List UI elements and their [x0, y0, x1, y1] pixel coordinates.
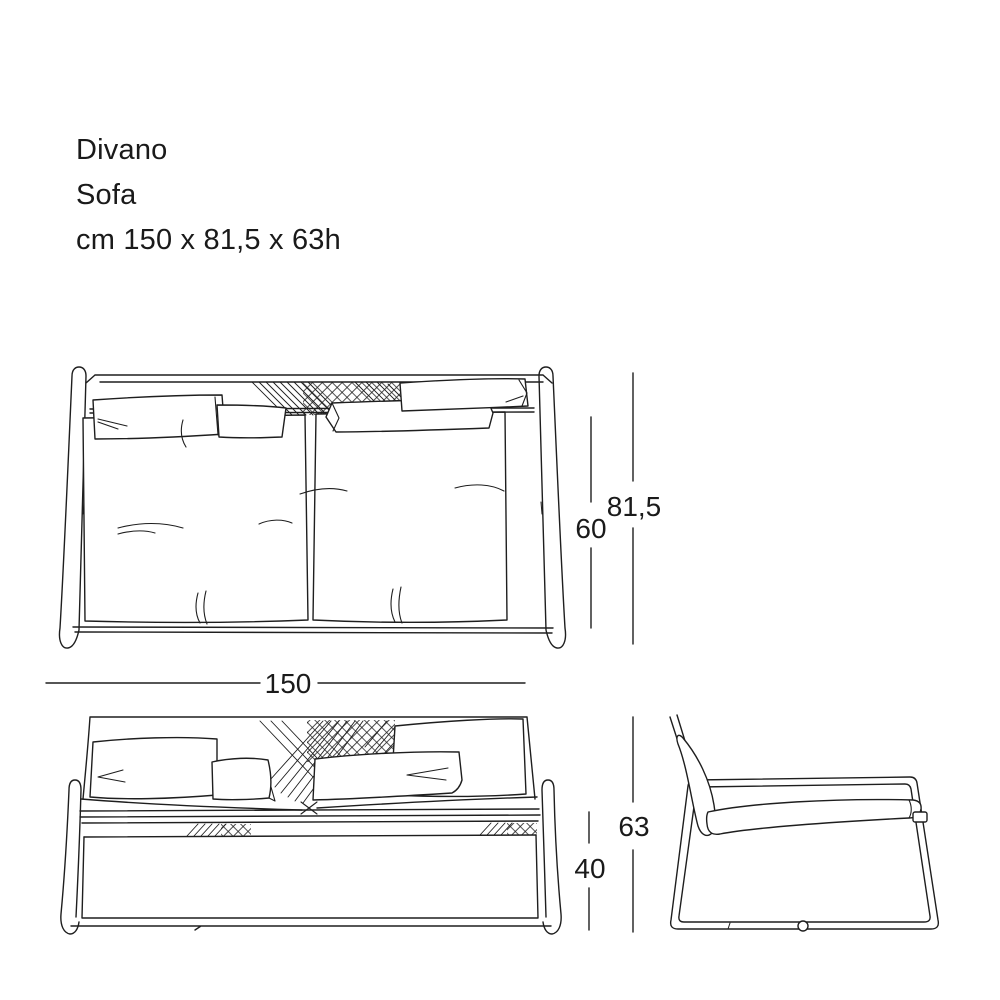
seat-rail-front-view — [80, 809, 540, 837]
dim-label-seat-depth: 60 — [575, 515, 606, 543]
sofa-side-view-drawing — [650, 700, 950, 935]
lumbar-pillow-right-front-view — [313, 752, 462, 800]
product-name-italian: Divano — [76, 128, 341, 173]
seat-cushion-right-top-view — [300, 412, 507, 623]
product-dimensions-text: cm 150 x 81,5 x 63h — [76, 218, 341, 263]
leg-right-front-view — [542, 780, 561, 934]
back-pillow-left-front-view — [90, 738, 217, 799]
sofa-top-view-drawing — [55, 362, 570, 654]
foot-glide-side-view — [798, 921, 808, 931]
spec-sheet-page: Divano Sofa cm 150 x 81,5 x 63h — [0, 0, 1000, 1000]
seat-edge-front-view — [81, 797, 537, 814]
pillow-center-front-view — [212, 758, 275, 801]
seat-cushion-side-view — [707, 800, 922, 835]
dim-label-total-height: 63 — [618, 813, 649, 841]
dim-label-width: 150 — [265, 670, 312, 698]
dim-label-total-depth: 81,5 — [607, 493, 662, 521]
armrest-left-top-view — [59, 367, 86, 648]
seat-cushion-left-top-view — [83, 415, 308, 624]
base-frame-front-view — [71, 835, 551, 930]
front-rail-top-view — [73, 627, 553, 633]
base-tick-side-view — [728, 923, 730, 929]
sofa-front-view-drawing — [55, 707, 570, 940]
rail-hatch-left-front-view — [187, 824, 251, 836]
title-block: Divano Sofa cm 150 x 81,5 x 63h — [76, 128, 341, 263]
seat-bracket-side-view — [913, 812, 927, 822]
product-name-english: Sofa — [76, 173, 341, 218]
rail-hatch-right-front-view — [480, 823, 537, 835]
leg-left-front-view — [61, 780, 81, 934]
dim-label-seat-height: 40 — [574, 855, 605, 883]
armrest-right-top-view — [539, 367, 566, 648]
